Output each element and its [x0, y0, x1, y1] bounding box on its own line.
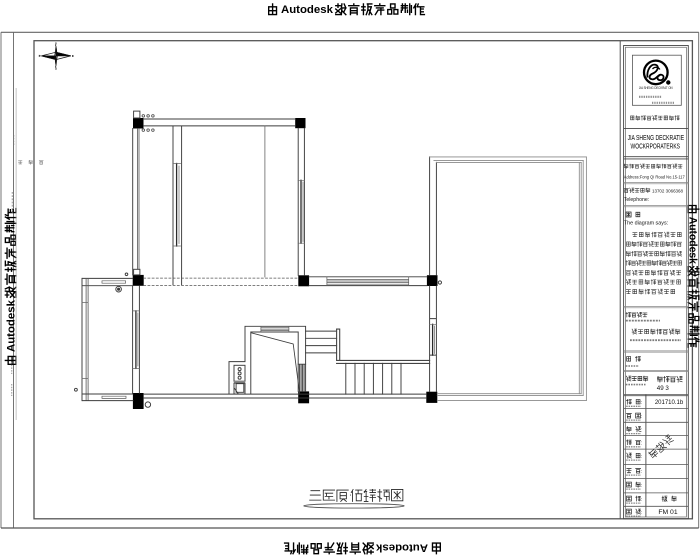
svg-text::: :: [641, 469, 642, 475]
svg-text::: :: [641, 454, 642, 460]
svg-text::: :: [641, 428, 642, 434]
svg-text::: :: [641, 510, 642, 516]
svg-text:13702 3066368: 13702 3066368: [652, 189, 683, 195]
svg-text:49 3: 49 3: [657, 385, 670, 392]
svg-text:JIA SHENG DECKRAT ON: JIA SHENG DECKRAT ON: [639, 86, 673, 90]
svg-text:The diagram says:: The diagram says:: [624, 221, 668, 227]
svg-text:FM 01: FM 01: [658, 509, 677, 516]
svg-text:Address:Fong Qi Road No.15-117: Address:Fong Qi Road No.15-117: [624, 174, 685, 180]
svg-text::: :: [641, 400, 642, 406]
svg-text:Telephone:: Telephone:: [624, 197, 649, 203]
svg-text::: :: [641, 441, 642, 447]
svg-text:201710.1b: 201710.1b: [655, 400, 684, 406]
svg-text::: :: [641, 414, 642, 420]
svg-text:WOCKRPORATERKS: WOCKRPORATERKS: [631, 141, 681, 150]
svg-text::: :: [638, 213, 639, 219]
svg-text::: :: [641, 483, 642, 489]
svg-text::: :: [641, 497, 642, 503]
